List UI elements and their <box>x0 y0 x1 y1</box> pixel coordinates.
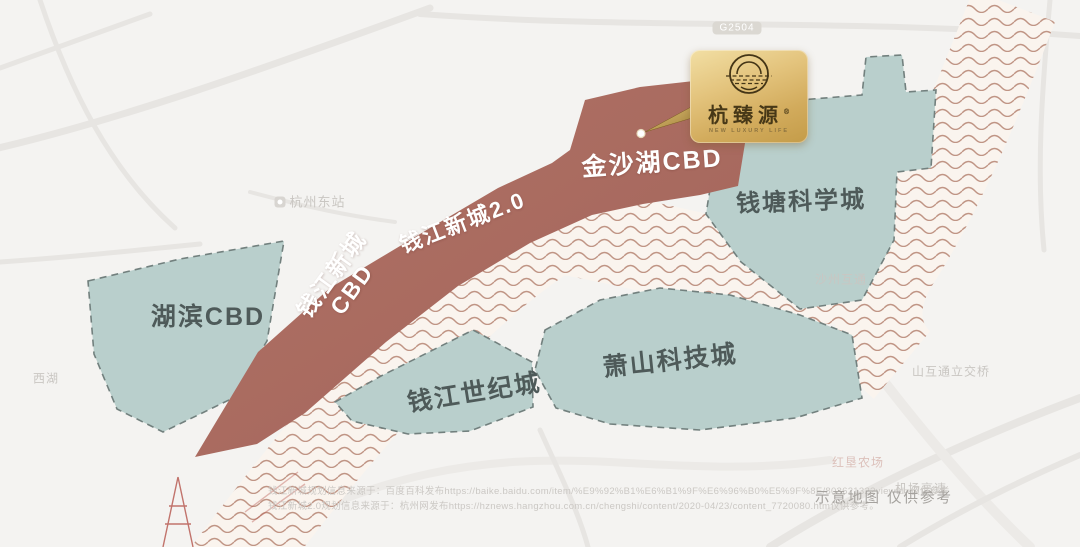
brand-tagline: NEW LUXURY LIFE <box>690 128 808 134</box>
map-canvas <box>0 0 1080 547</box>
label-hubin-cbd: 湖滨CBD <box>151 297 265 333</box>
highway-badge-g2504: G2504 <box>712 22 761 35</box>
location-dot <box>637 130 645 138</box>
brand-logo: 杭臻源® NEW LUXURY LIFE <box>690 50 808 143</box>
brand-emblem-icon <box>690 50 808 98</box>
label-shazhou-interchange: 沙州互通 <box>815 271 867 288</box>
disclaimer-line-2: 钱江新城2.0规划信息来源于：杭州网发布https://hznews.hangz… <box>268 498 879 512</box>
label-qiantang-science: 钱塘科学城 <box>735 179 866 219</box>
railway-station-text: 杭州东站 <box>289 195 345 210</box>
schematic-map: 湖滨CBD 钱江新城 CBD 钱江新城2.0 金沙湖CBD 钱塘科学城 萧山科技… <box>0 0 1080 547</box>
registered-mark: ® <box>783 107 790 116</box>
railway-station-icon <box>274 197 285 208</box>
label-hongken-farm: 红垦农场 <box>832 454 884 471</box>
map-note: 示意地图 仅供参考 <box>815 487 953 508</box>
brand-name: 杭臻源® <box>690 105 808 125</box>
label-railway-station: 杭州东站 <box>274 192 345 211</box>
label-interchange-bridge: 山互通立交桥 <box>912 363 990 380</box>
label-west-lake: 西湖 <box>33 370 59 387</box>
